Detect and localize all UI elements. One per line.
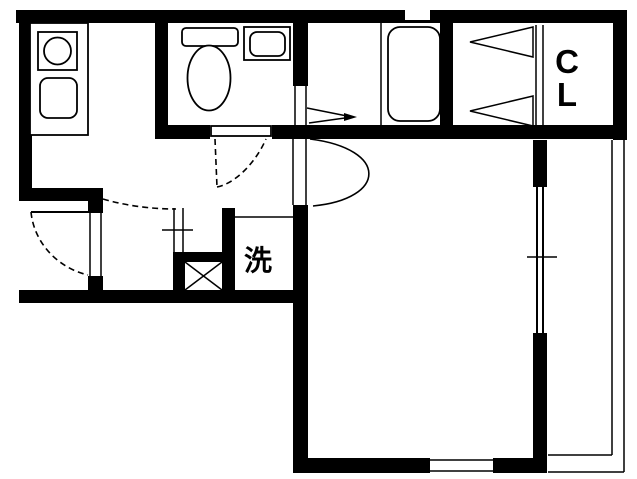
kitchen-counter-icon: [30, 23, 88, 135]
window-top: [405, 10, 430, 20]
toilet-bowl: [188, 46, 231, 111]
bathtub-icon: [388, 27, 440, 121]
washer-space-label: 洗: [244, 245, 272, 276]
kitchen-sink-icon: [40, 78, 77, 118]
wall-segment: [19, 290, 308, 303]
wall-segment: [88, 276, 103, 292]
wall-segment: [155, 23, 168, 137]
toilet-tank: [182, 28, 238, 46]
stove-burner-icon: [44, 38, 71, 65]
hand-basin-icon: [244, 27, 290, 60]
wall-segment: [440, 23, 453, 139]
wall-segment: [19, 188, 103, 201]
wall-segment: [16, 10, 627, 23]
window-right-opening: [533, 187, 547, 333]
closet-label-l: L: [557, 76, 577, 113]
wall-segment: [293, 205, 308, 473]
toilet-door-leaf: [211, 126, 271, 136]
wall-segment: [293, 23, 308, 86]
wall-segment: [613, 10, 627, 140]
wall-segment: [173, 252, 185, 303]
wall-segment: [88, 201, 103, 213]
floor-plan-canvas: 洗 C L: [0, 0, 637, 479]
closet-label-c: C: [555, 43, 579, 80]
pipe-shaft-icon: [185, 262, 222, 290]
wall-segment: [293, 458, 547, 473]
hand-basin-bowl: [250, 32, 285, 56]
floor-plan: 洗 C L: [0, 0, 637, 479]
